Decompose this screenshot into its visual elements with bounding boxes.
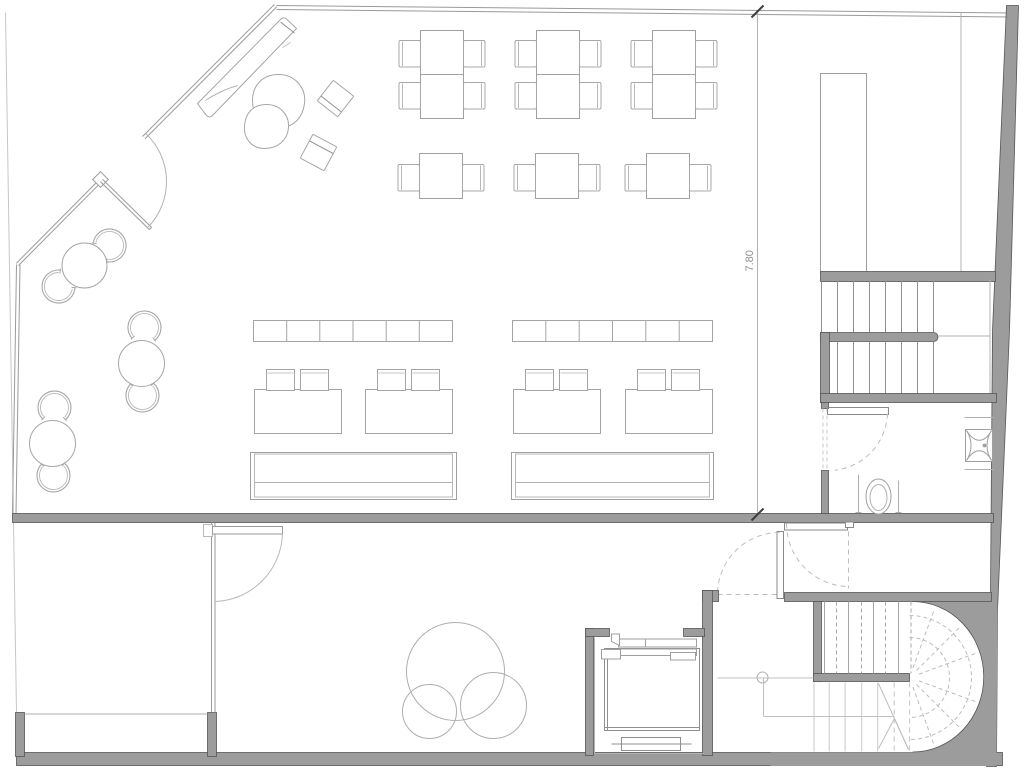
svg-text:7.80: 7.80	[744, 250, 756, 271]
